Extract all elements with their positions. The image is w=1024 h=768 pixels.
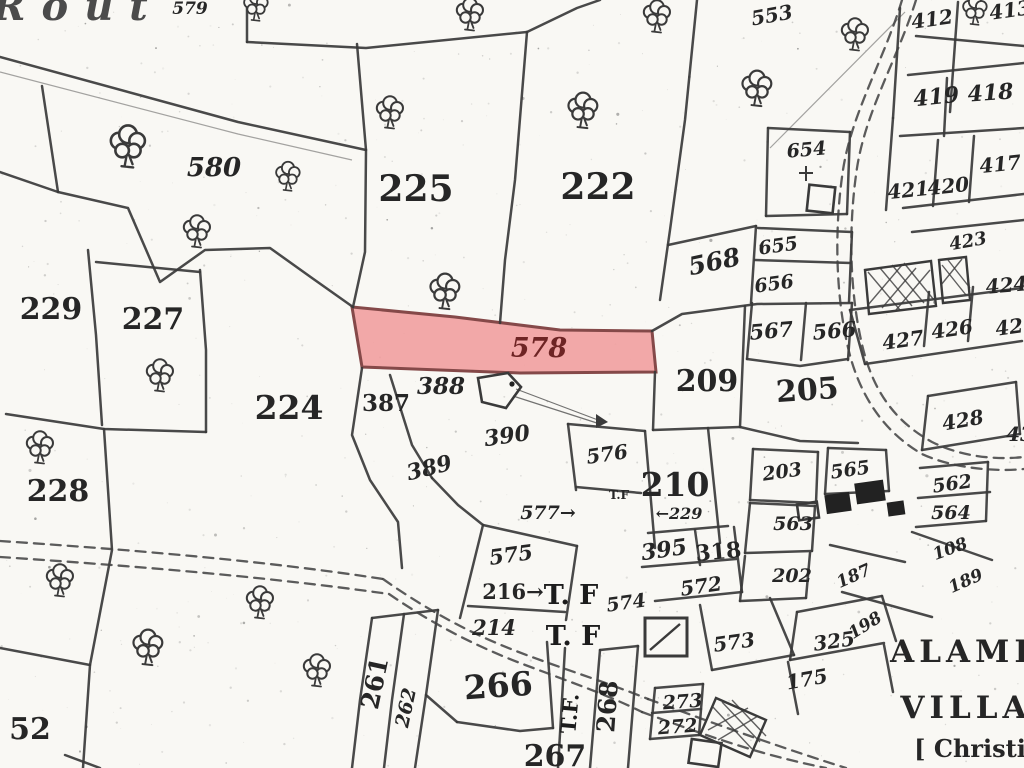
map-label-420: 420 [926,172,970,200]
map-label-52: 52 [9,712,51,747]
map-label-tf: T. F [544,580,599,611]
map-label-318: 318 [694,537,742,567]
map-viewport[interactable]: Rout579580225222553654412413419418417421… [0,0,1024,768]
map-label-425: 425 [994,311,1024,341]
map-label-rout: Rout [0,0,164,30]
map-label-229: ←229 [656,504,703,523]
map-label-388: 388 [417,373,465,400]
map-label-268: 268 [591,679,624,733]
map-label-christi: [ Christi [914,734,1024,763]
map-label-418: 418 [967,78,1015,107]
map-label-228: 228 [27,474,90,509]
building-solid-icon [825,492,851,513]
map-label-564: 564 [931,502,971,524]
map-label-421: 421 [886,176,930,204]
map-label-580: 580 [187,153,241,183]
map-label-654: 654 [786,137,827,162]
map-label-229: 229 [20,292,83,327]
map-label-267: 267 [524,739,587,768]
map-label-205: 205 [775,371,840,410]
map-label-227: 227 [122,302,185,337]
map-label-387: 387 [362,390,410,417]
map-label-tf: T.F [609,488,630,502]
map-label-tf: T.F. [555,692,583,734]
building-solid-icon [887,501,905,516]
building-solid-icon [855,480,886,504]
map-label-villa: VILLA [899,690,1024,726]
survey-point-icon [509,381,514,386]
map-label-tf: T. F [546,621,601,652]
map-label-209: 209 [676,364,739,399]
map-label-579: 579 [172,0,208,19]
map-label-566: 566 [811,316,857,345]
map-label-214: 214 [471,615,516,640]
map-label-578: 578 [511,333,568,364]
map-label-222: 222 [560,166,635,208]
map-label-225: 225 [378,168,453,210]
cadastral-map[interactable]: Rout579580225222553654412413419418417421… [0,0,1024,768]
map-label-272: 272 [656,715,698,740]
map-label-266: 266 [462,664,533,708]
map-label-224: 224 [255,388,324,427]
map-label-273: 273 [661,690,703,715]
map-label-216: 216→ [482,579,543,604]
map-label-563: 563 [773,513,813,535]
map-label-210: 210 [641,465,710,504]
map-label-417: 417 [978,150,1022,178]
map-label-419: 419 [912,82,960,113]
map-label-424: 424 [985,271,1024,299]
map-label-43: 43 [1006,422,1024,446]
map-label-577: 577→ [520,502,576,524]
map-label-202: 202 [771,565,812,587]
map-label-alami: ALAMI [889,634,1024,670]
map-label-567: 567 [748,316,794,345]
